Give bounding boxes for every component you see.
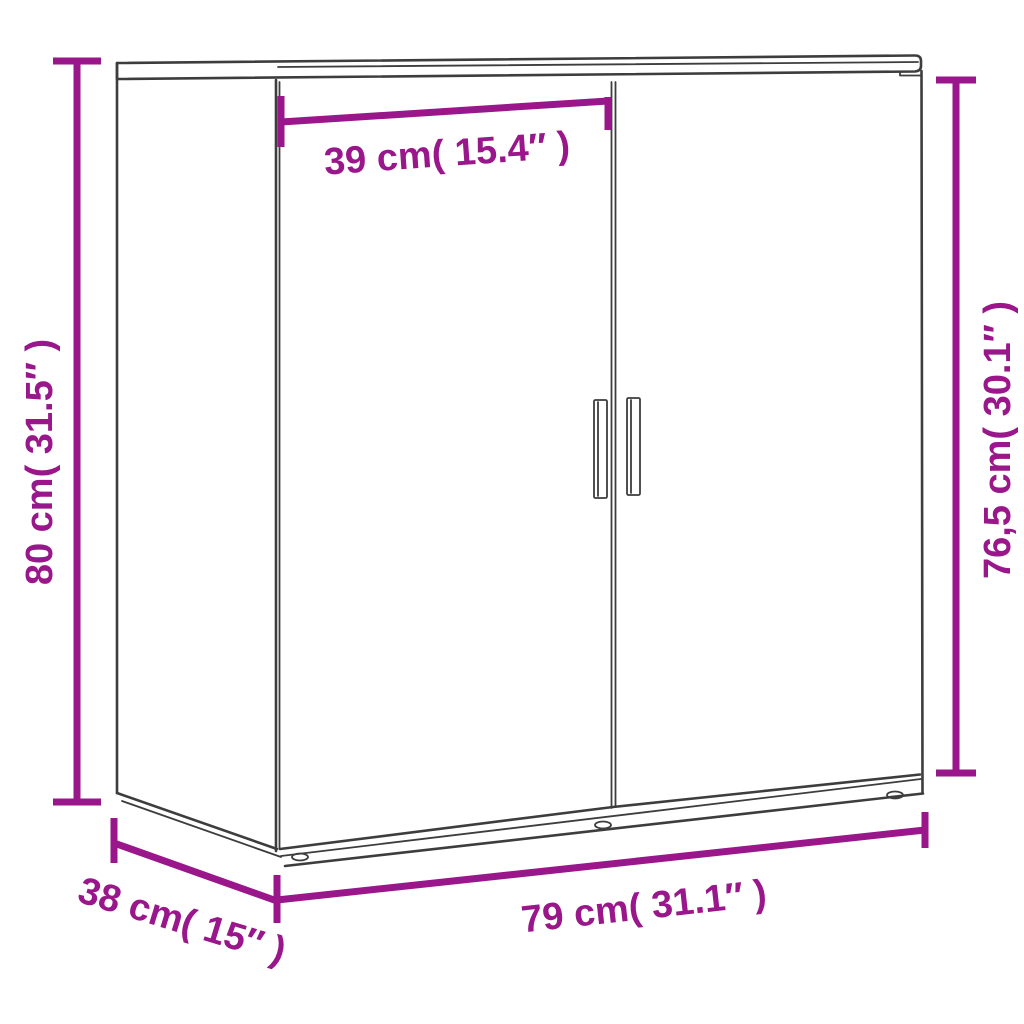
plinth-bottom-edge <box>285 794 923 867</box>
side-height-label: 76,5 cm( 30.1″ ) <box>977 301 1019 579</box>
foot-middle <box>595 822 611 829</box>
side-panel-bottom-edge <box>117 793 277 849</box>
side-height-dimension-line <box>936 80 976 773</box>
cabinet-top-panel <box>117 56 921 80</box>
width-dimension-shaft <box>277 830 925 900</box>
left-door-handle <box>594 400 607 498</box>
bottom-panel-edge <box>281 779 921 856</box>
right-door-handle <box>627 398 640 495</box>
dimension-lines <box>53 61 976 923</box>
height-label: 80 cm( 31.5″ ) <box>19 339 61 585</box>
dimension-labels: 39 cm( 15.4″ ) 80 cm( 31.5″ ) 76,5 cm( 3… <box>19 124 1019 972</box>
cabinet-line-art <box>117 56 923 867</box>
cabinet-feet <box>292 792 903 861</box>
door-width-dimension-shaft <box>281 101 608 122</box>
depth-label: 38 cm( 15″ ) <box>73 870 291 973</box>
cabinet-top-face-edge <box>278 62 918 67</box>
furniture-dimension-diagram: 39 cm( 15.4″ ) 80 cm( 31.5″ ) 76,5 cm( 3… <box>0 0 1024 1024</box>
width-label: 79 cm( 31.1″ ) <box>519 873 768 942</box>
side-base-bottom-edge <box>122 801 281 857</box>
door-width-label: 39 cm( 15.4″ ) <box>323 124 572 183</box>
cabinet-right-edge <box>922 71 923 793</box>
